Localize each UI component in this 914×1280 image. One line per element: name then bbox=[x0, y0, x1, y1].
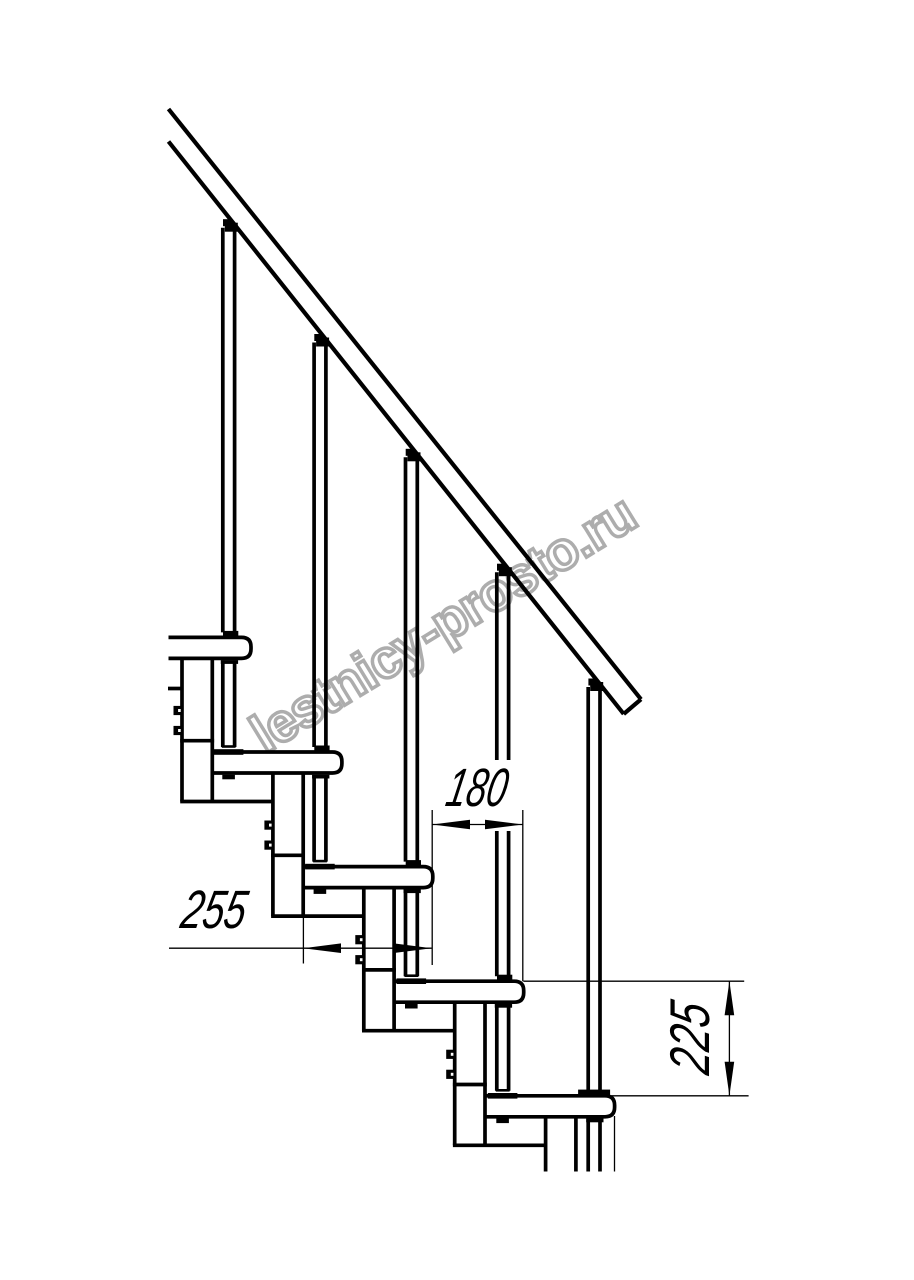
svg-text:225: 225 bbox=[658, 996, 720, 1079]
svg-text:255: 255 bbox=[176, 879, 253, 939]
svg-text:180: 180 bbox=[442, 757, 514, 817]
svg-text:lestnicy-prosto.ru: lestnicy-prosto.ru bbox=[240, 483, 647, 764]
